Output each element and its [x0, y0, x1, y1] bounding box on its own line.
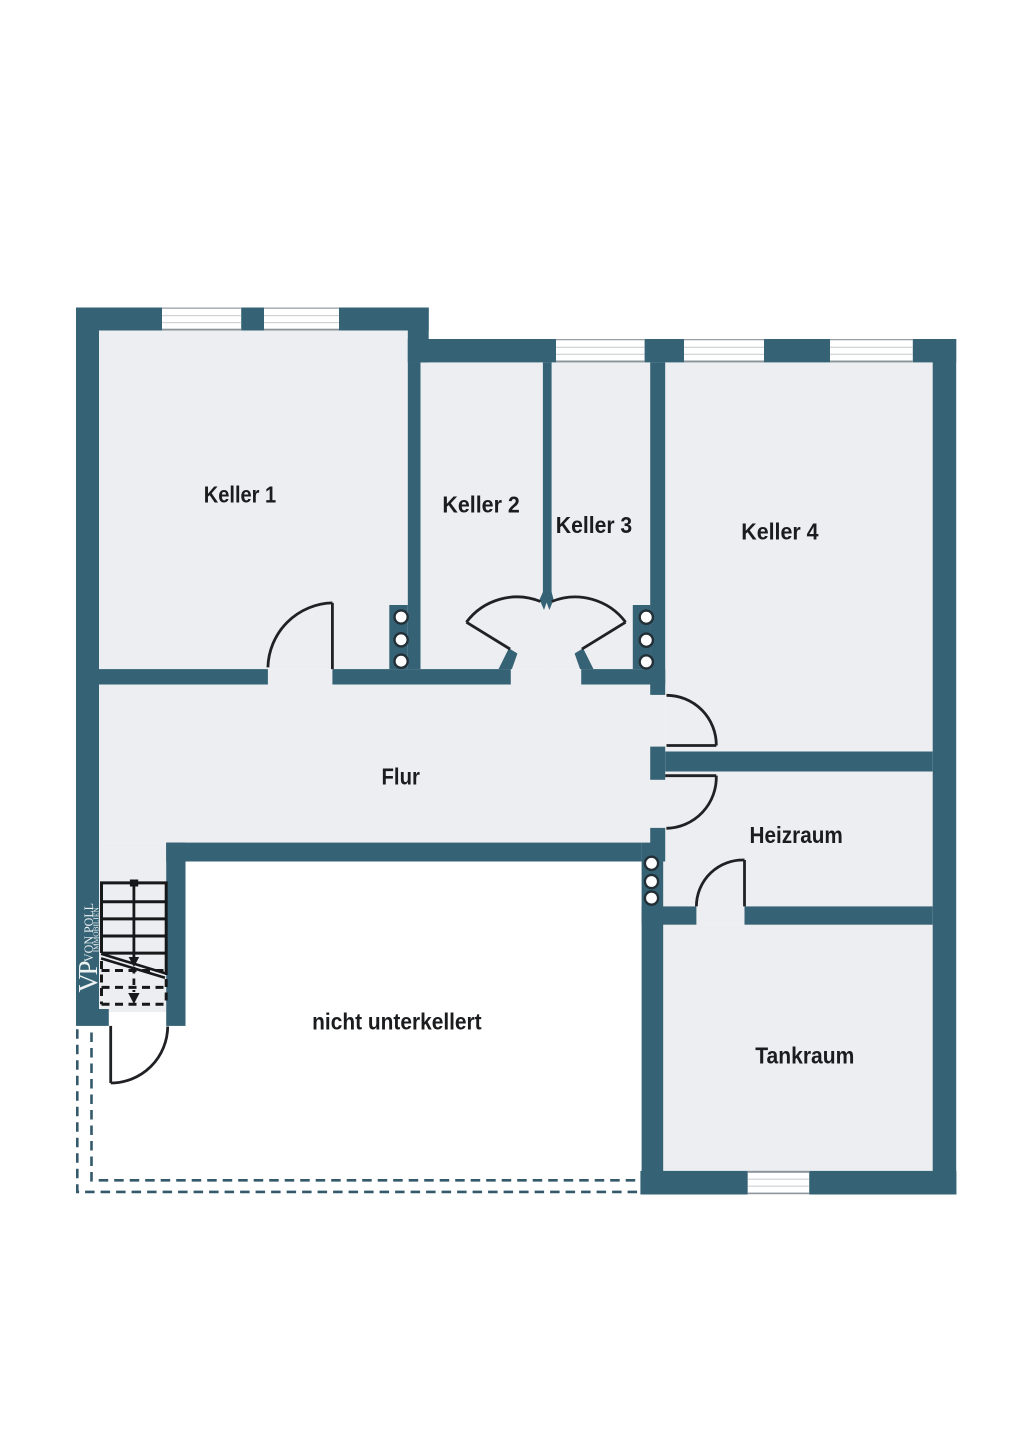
svg-text:VP: VP	[73, 962, 103, 993]
svg-text:Keller 4: Keller 4	[741, 519, 818, 545]
svg-text:nicht unterkellert: nicht unterkellert	[312, 1008, 482, 1034]
svg-text:Tankraum: Tankraum	[755, 1043, 854, 1069]
svg-text:Flur: Flur	[382, 763, 420, 789]
svg-text:Keller 1: Keller 1	[204, 482, 277, 508]
svg-text:IMMOBILIEN: IMMOBILIEN	[92, 907, 101, 953]
svg-text:Heizraum: Heizraum	[750, 822, 843, 848]
svg-text:Keller 2: Keller 2	[442, 492, 519, 518]
svg-text:Keller 3: Keller 3	[556, 512, 632, 538]
